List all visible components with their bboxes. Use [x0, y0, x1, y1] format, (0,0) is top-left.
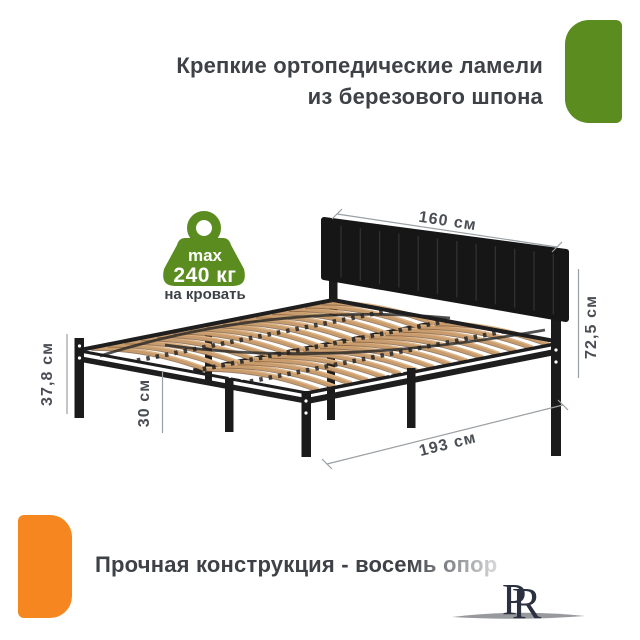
green-accent-block [565, 20, 622, 123]
title-line-1: Крепкие ортопедические ламели [176, 50, 543, 81]
page-title: Крепкие ортопедические ламели из березов… [176, 50, 543, 112]
footer-title: Прочная конструкция - восемь опор [95, 552, 497, 578]
brand-logo: P R [440, 575, 600, 630]
bed-leg [551, 316, 561, 456]
dimension-label-leg-height: 30 см [136, 379, 153, 427]
bed-illustration: 160 см 193 см 72,5 см 37,8 см 30 см [0, 180, 640, 500]
dimension-label-total-height: 72,5 см [583, 295, 600, 359]
logo-letter-r: R [512, 582, 541, 626]
bed-leg [225, 379, 234, 432]
product-card: Крепкие ортопедические ламели из березов… [0, 0, 640, 640]
orange-accent-block [18, 515, 72, 618]
bed-leg [75, 338, 85, 418]
dimension-label-frame-height: 37,8 см [39, 342, 56, 406]
bed-leg [407, 368, 416, 428]
title-line-2: из березового шпона [176, 81, 543, 112]
